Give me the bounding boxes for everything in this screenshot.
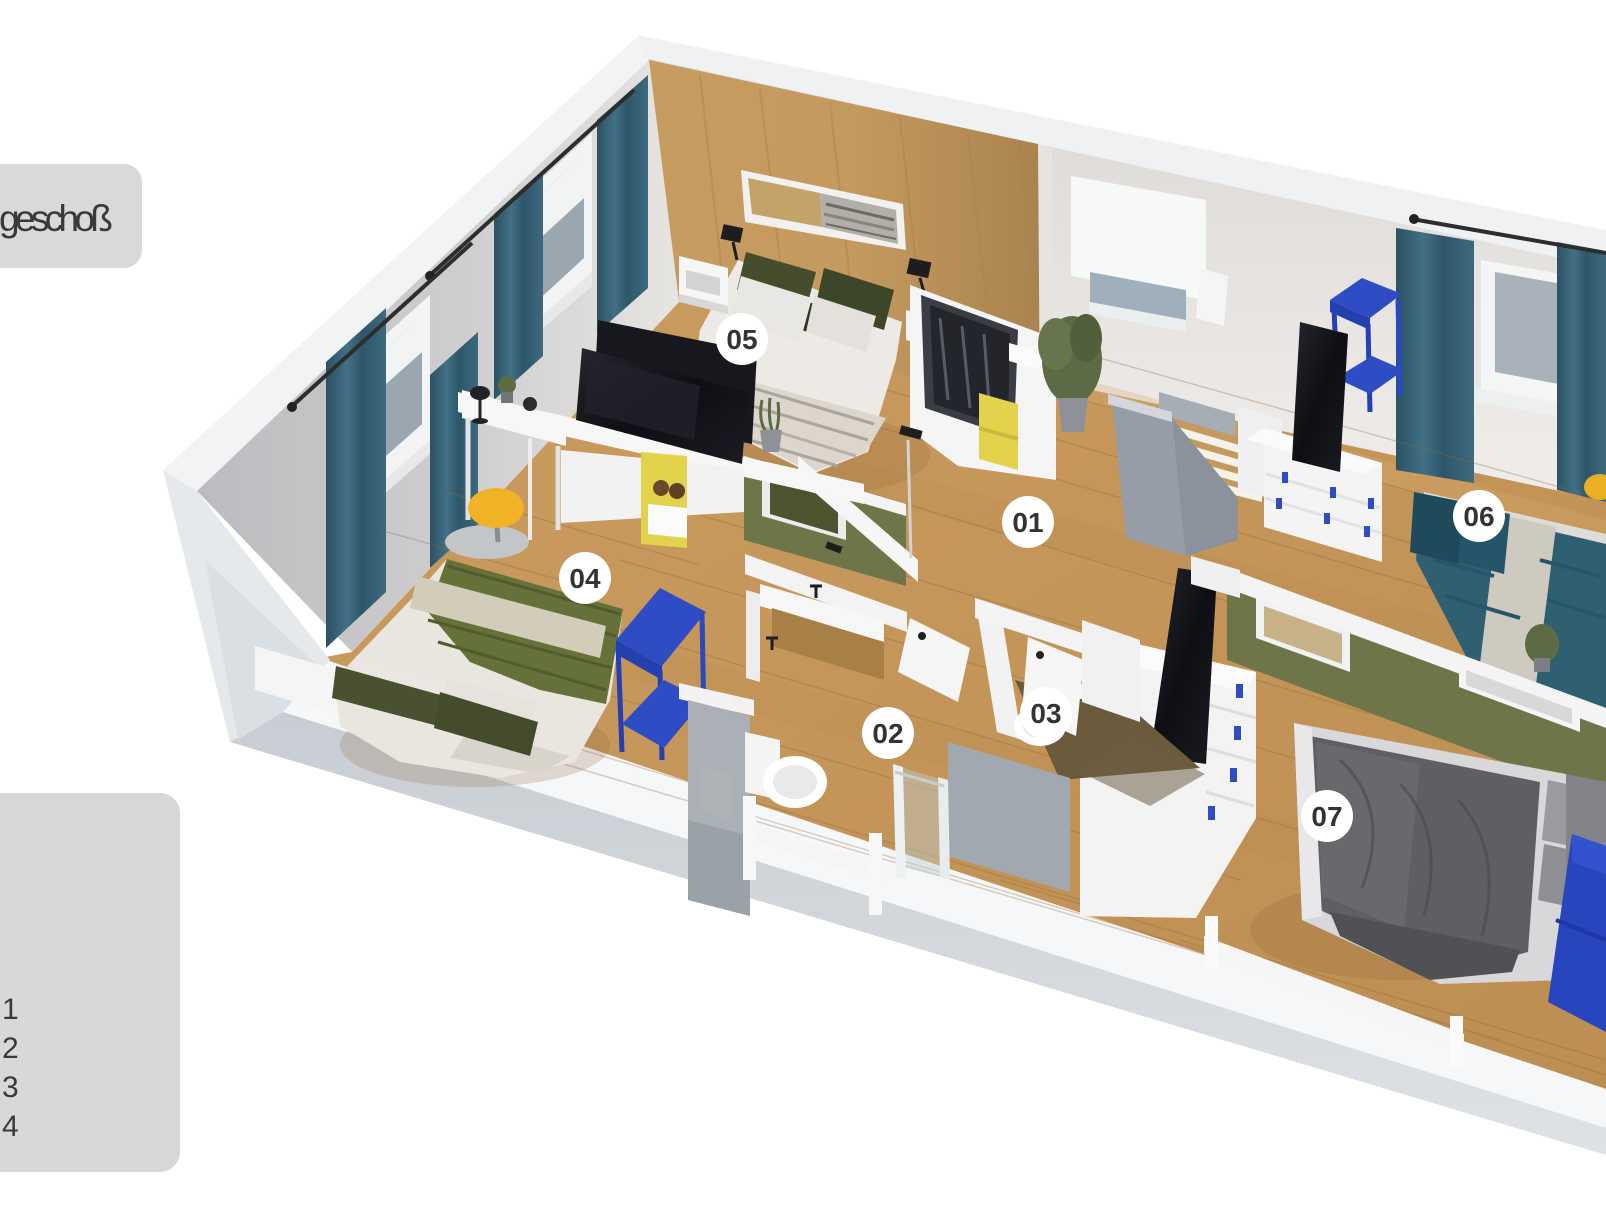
svg-text:4: 4: [2, 1110, 19, 1143]
svg-text:02: 02: [872, 718, 903, 749]
svg-text:2: 2: [2, 1032, 19, 1065]
svg-text:04: 04: [569, 563, 601, 594]
svg-text:3: 3: [2, 1071, 19, 1104]
svg-text:05: 05: [726, 324, 757, 355]
svg-text:03: 03: [1030, 698, 1061, 729]
svg-text:07: 07: [1311, 801, 1342, 832]
svg-text:06: 06: [1463, 501, 1494, 532]
svg-text:geschoß: geschoß: [0, 198, 113, 239]
svg-text:1: 1: [2, 993, 19, 1026]
svg-text:01: 01: [1012, 507, 1043, 538]
